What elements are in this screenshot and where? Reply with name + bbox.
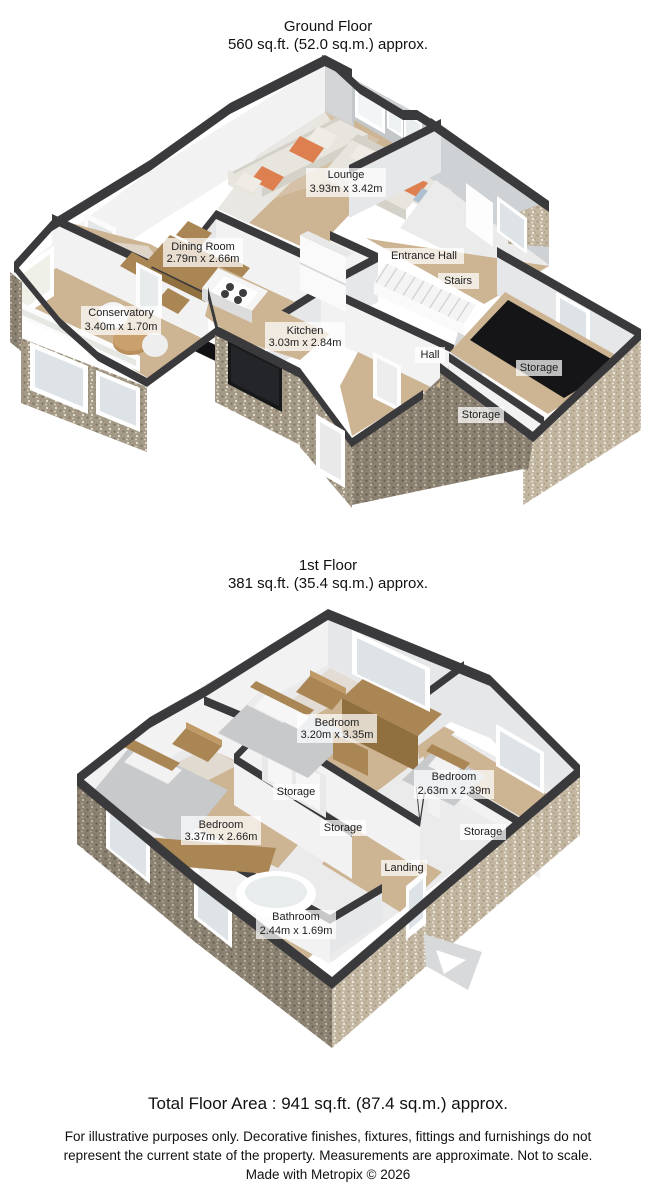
svg-text:Lounge: Lounge [328, 169, 365, 181]
svg-text:2.79m x 2.66m: 2.79m x 2.66m [167, 253, 240, 265]
svg-text:Dining Room: Dining Room [171, 241, 235, 253]
svg-text:2.63m x 2.39m: 2.63m x 2.39m [418, 785, 491, 797]
svg-text:3.20m x 3.35m: 3.20m x 3.35m [301, 729, 374, 741]
svg-text:Stairs: Stairs [444, 275, 473, 287]
svg-text:Conservatory: Conservatory [88, 307, 154, 319]
svg-text:560 sq.ft. (52.0 sq.m.) approx: 560 sq.ft. (52.0 sq.m.) approx. [228, 36, 428, 53]
svg-text:Bathroom: Bathroom [272, 911, 320, 923]
svg-text:Storage: Storage [464, 826, 503, 838]
svg-text:3.40m x 1.70m: 3.40m x 1.70m [85, 321, 158, 333]
svg-text:Ground Floor: Ground Floor [284, 18, 372, 35]
svg-text:Bedroom: Bedroom [432, 771, 477, 783]
svg-text:Bedroom: Bedroom [315, 717, 360, 729]
svg-text:Storage: Storage [462, 409, 501, 421]
svg-text:Storage: Storage [324, 822, 363, 834]
svg-text:Kitchen: Kitchen [287, 325, 324, 337]
svg-text:represent the current state of: represent the current state of the prope… [64, 1148, 593, 1163]
svg-text:Storage: Storage [277, 786, 316, 798]
svg-text:Storage: Storage [520, 362, 559, 374]
svg-text:3.03m x 2.84m: 3.03m x 2.84m [269, 337, 342, 349]
svg-text:Entrance Hall: Entrance Hall [391, 250, 457, 262]
svg-text:Landing: Landing [384, 862, 423, 874]
svg-text:Made with Metropix © 2026: Made with Metropix © 2026 [246, 1167, 411, 1182]
svg-text:381 sq.ft. (35.4 sq.m.) approx: 381 sq.ft. (35.4 sq.m.) approx. [228, 575, 428, 592]
svg-text:Bedroom: Bedroom [199, 819, 244, 831]
svg-text:Hall: Hall [421, 349, 440, 361]
svg-text:1st Floor: 1st Floor [299, 557, 357, 574]
svg-text:For illustrative purposes only: For illustrative purposes only. Decorati… [65, 1129, 592, 1144]
svg-text:3.93m x 3.42m: 3.93m x 3.42m [310, 183, 383, 195]
svg-text:Total Floor Area : 941 sq.ft.: Total Floor Area : 941 sq.ft. (87.4 sq.m… [148, 1094, 508, 1113]
svg-text:3.37m x 2.66m: 3.37m x 2.66m [185, 831, 258, 843]
svg-text:2.44m x 1.69m: 2.44m x 1.69m [260, 925, 333, 937]
